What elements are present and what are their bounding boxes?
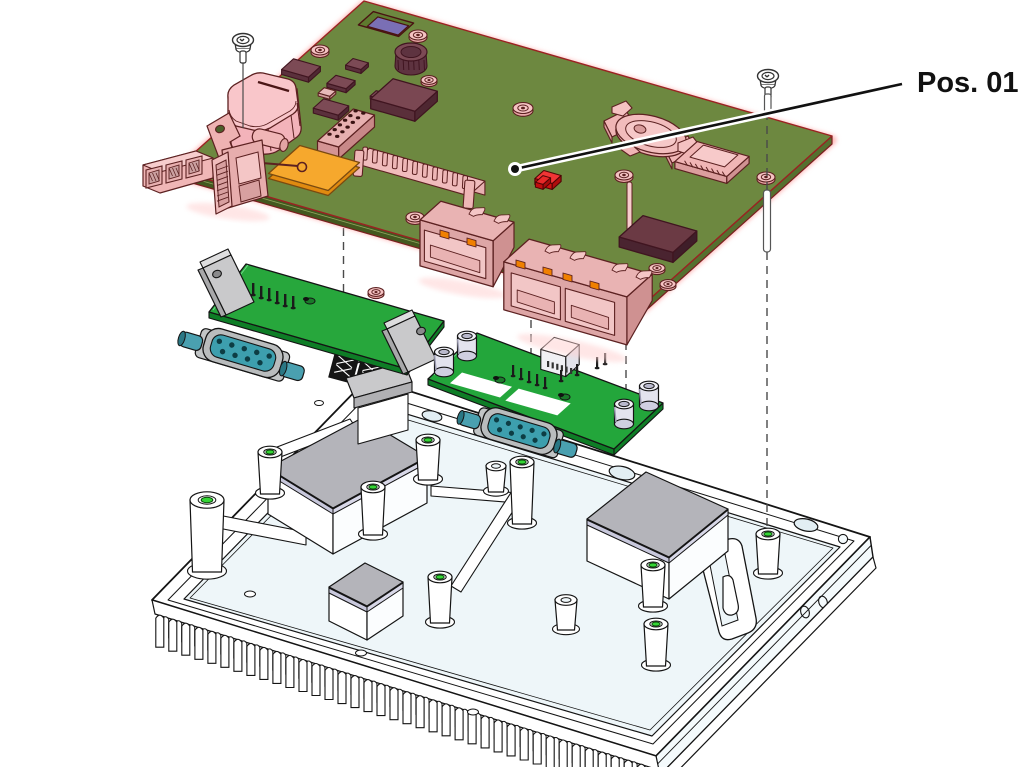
svg-text:Pos. 01: Pos. 01	[917, 67, 1019, 99]
